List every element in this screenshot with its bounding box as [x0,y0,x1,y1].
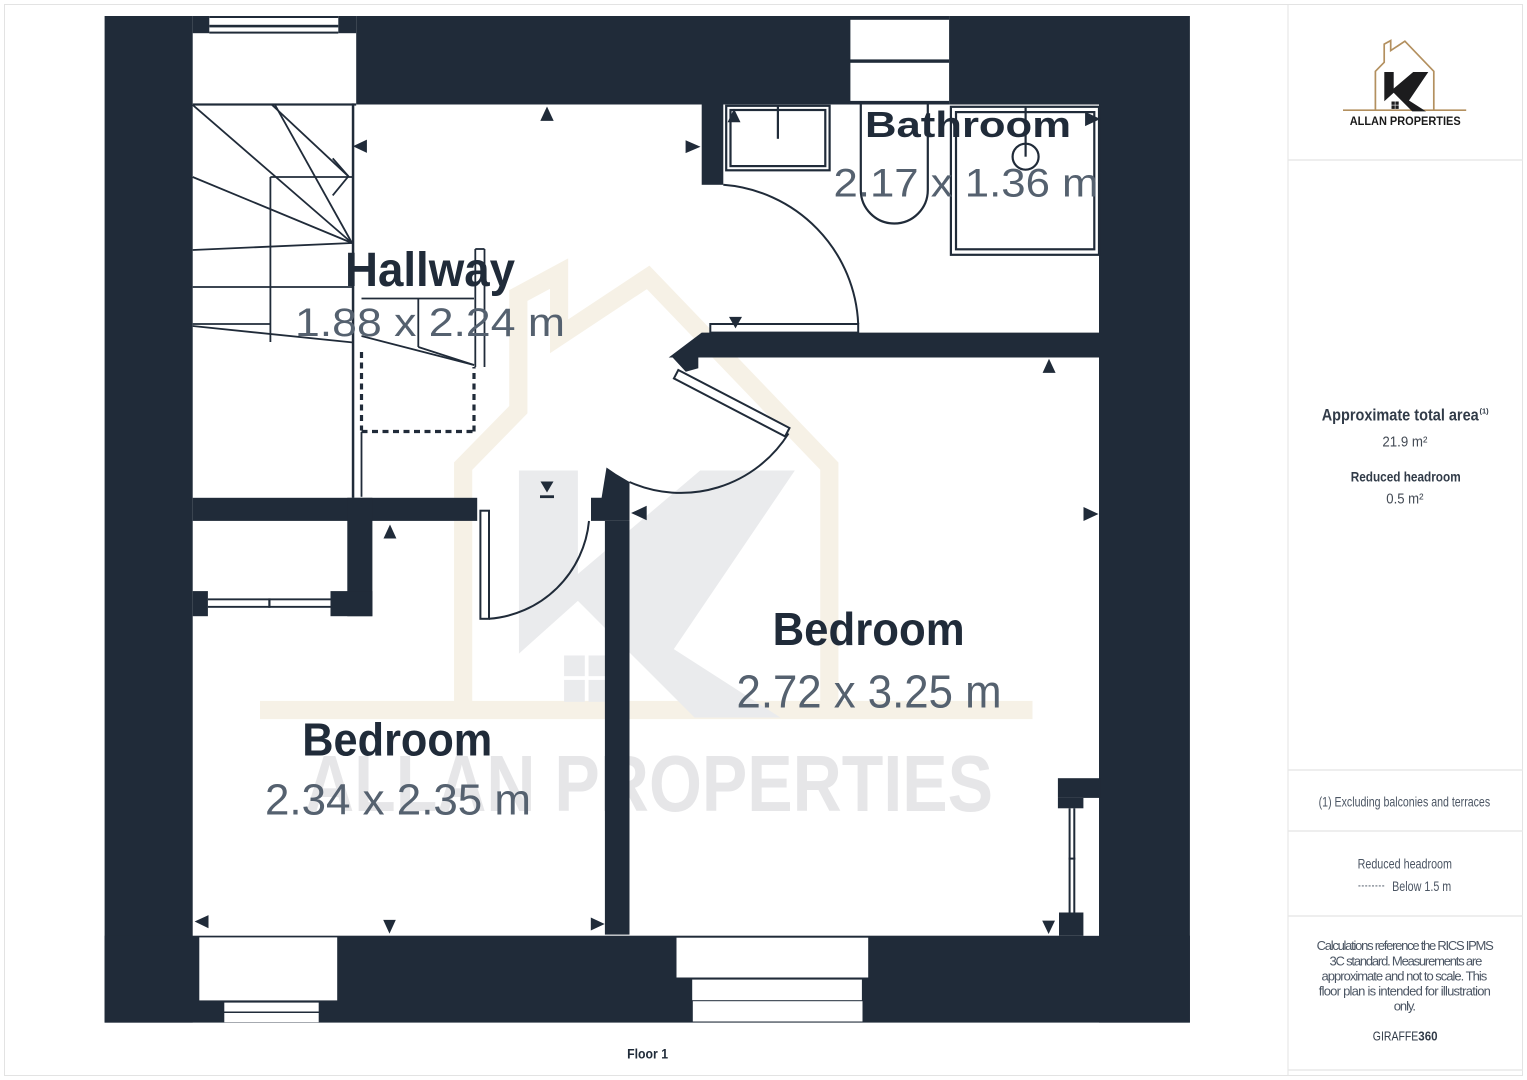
svg-text:Calculations reference the RIC: Calculations reference the RICS IPMS [1317,938,1495,953]
svg-text:1.88 x 2.24 m: 1.88 x 2.24 m [295,301,565,345]
svg-text:21.9 m²: 21.9 m² [1382,434,1427,450]
svg-text:2.72 x 3.25 m: 2.72 x 3.25 m [737,666,1002,718]
svg-text:2.17 x 1.36 m: 2.17 x 1.36 m [834,162,1099,206]
svg-text:ALLAN PROPERTIES: ALLAN PROPERTIES [1350,116,1461,128]
svg-text:(1) Excluding balconies and te: (1) Excluding balconies and terraces [1319,794,1491,810]
svg-text:Reduced headroom: Reduced headroom [1351,469,1461,485]
svg-text:Below 1.5 m: Below 1.5 m [1392,878,1451,894]
svg-text:floor plan is intended for ill: floor plan is intended for illustration [1319,984,1491,999]
svg-text:(1): (1) [1480,407,1490,416]
svg-text:Bedroom: Bedroom [302,714,492,766]
svg-text:0.5 m²: 0.5 m² [1386,491,1423,507]
svg-text:Bedroom: Bedroom [773,603,965,655]
svg-text:Approximate total area: Approximate total area [1322,406,1480,424]
svg-text:Floor 1: Floor 1 [627,1047,668,1062]
svg-text:Bathroom: Bathroom [865,104,1071,145]
svg-text:Reduced headroom: Reduced headroom [1358,856,1452,872]
svg-text:only.: only. [1394,999,1416,1014]
svg-text:Hallway: Hallway [345,244,515,297]
svg-text:3C standard. Measurements are: 3C standard. Measurements are [1330,953,1483,968]
svg-text:approximate and not to scale.: approximate and not to scale. This [1322,969,1488,984]
svg-text:2.34 x 2.35 m: 2.34 x 2.35 m [265,776,531,825]
svg-text:360: 360 [1418,1028,1437,1043]
svg-text:GIRAFFE: GIRAFFE [1373,1028,1419,1043]
